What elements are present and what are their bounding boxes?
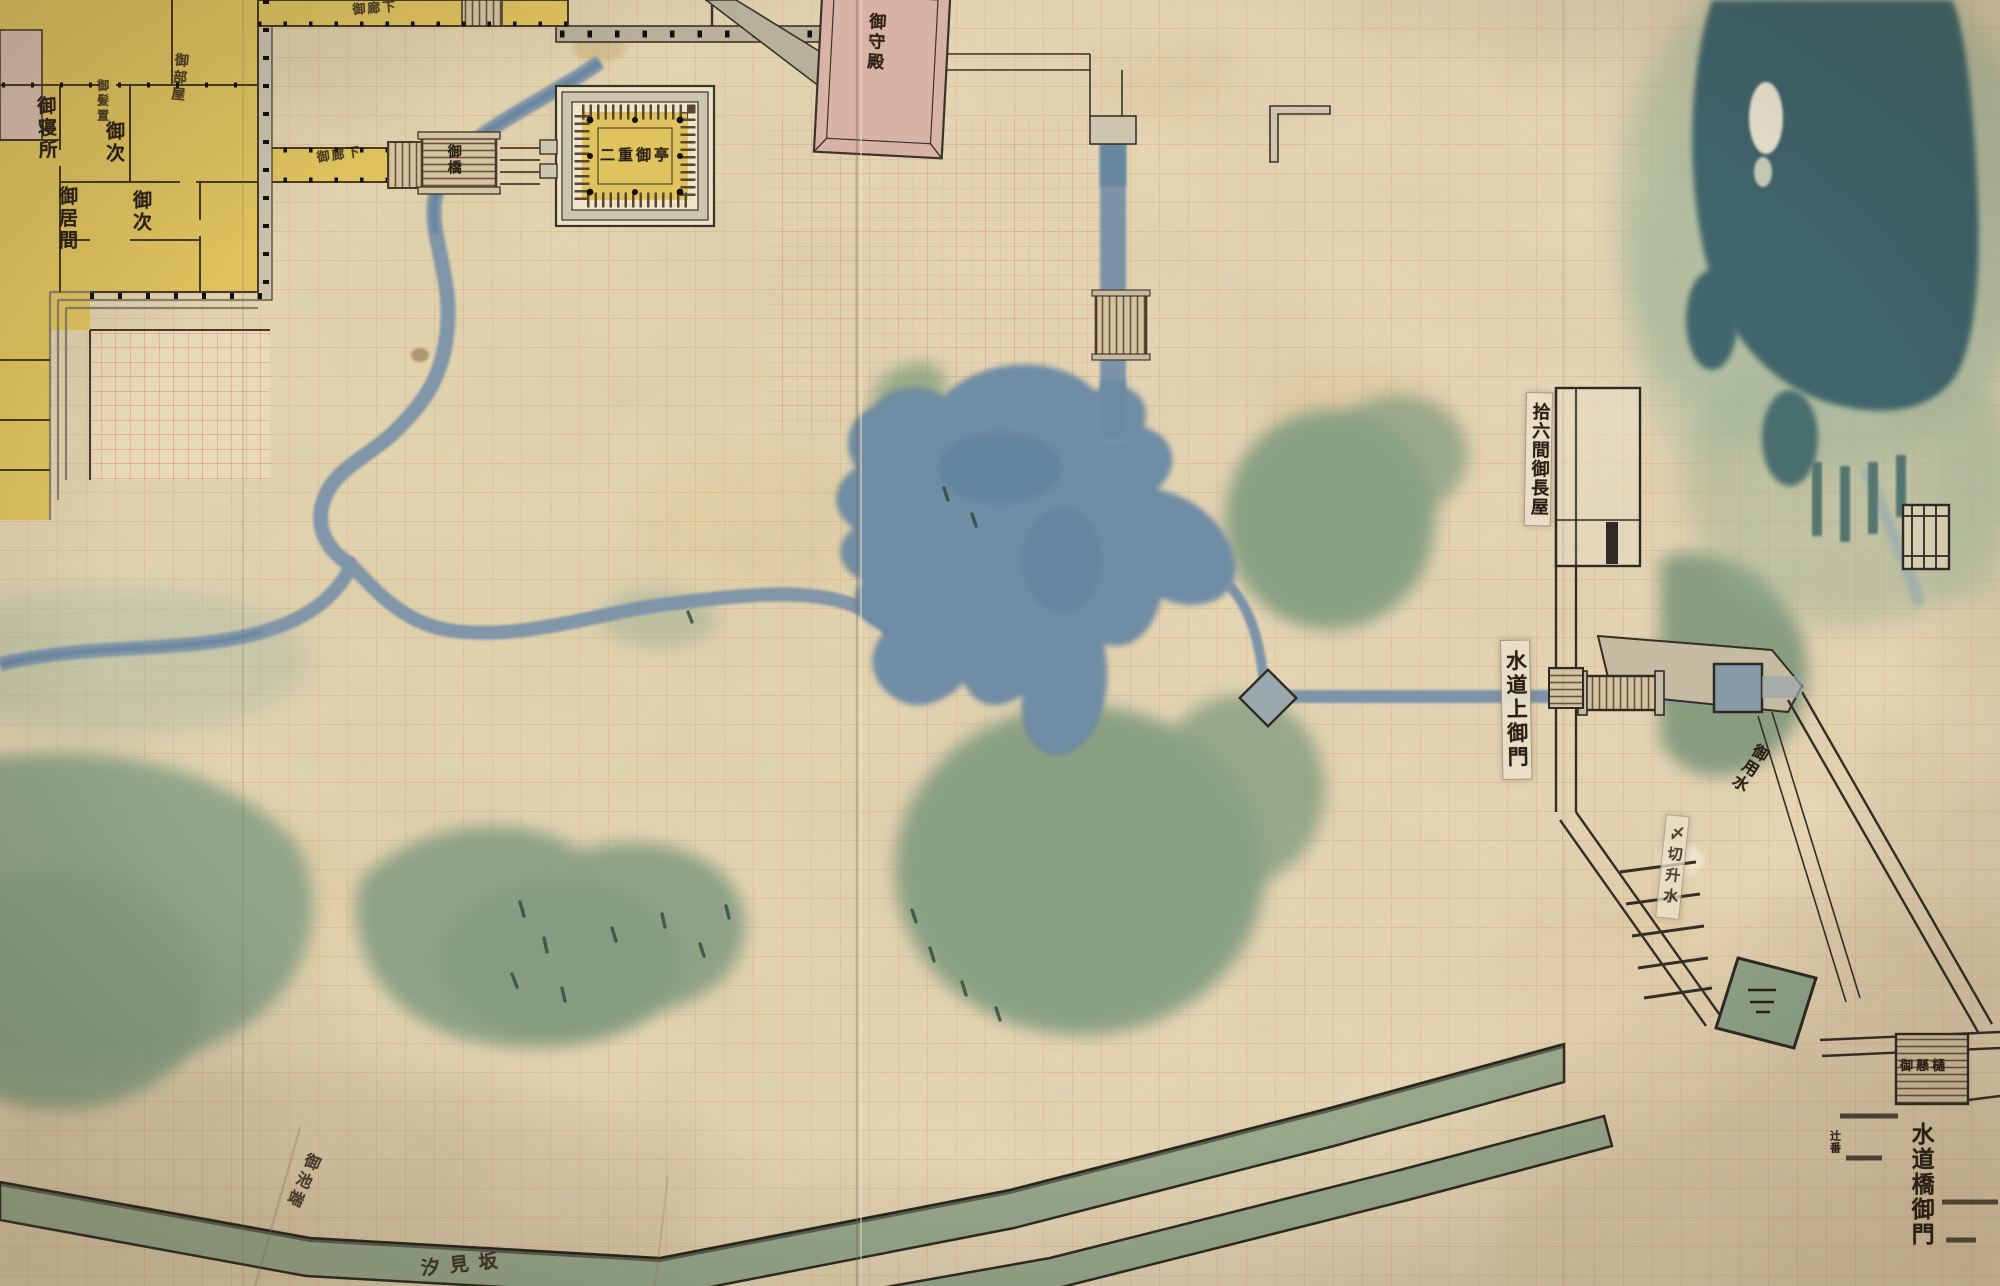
edo-waterworks-map: 御寝所 御髪置 御次 御居間 御次 御部屋 御廊下 御廊下 御橋 二重御亭 御守… (0, 0, 2000, 1286)
label-okamioki: 御髪置 (96, 79, 109, 124)
label-goshuden: 御守殿 (863, 12, 884, 73)
label-otsugi-a: 御次 (103, 121, 123, 165)
label-otsugi-b: 御次 (130, 190, 150, 234)
label-okakehi: 御懸樋 (1900, 1060, 1948, 1074)
label-otei: 二重御亭 (600, 148, 672, 164)
label-goshinjo: 御寝所 (34, 95, 56, 162)
label-suidobashi-gomon: 水道橋御門 (1908, 1122, 1932, 1247)
label-nagaya: 拾六間御長屋 (1524, 392, 1553, 526)
label-oroka-top: 御廊下 (352, 1, 398, 18)
label-tsujiban: 辻番 (1829, 1130, 1841, 1154)
vignette (0, 0, 2000, 1286)
map-painting (0, 0, 2000, 1286)
label-ohashi: 御橋 (446, 144, 461, 176)
label-suido-kami-gomon: 水道上御門 (1500, 639, 1532, 780)
label-oima: 御居間 (56, 186, 76, 252)
